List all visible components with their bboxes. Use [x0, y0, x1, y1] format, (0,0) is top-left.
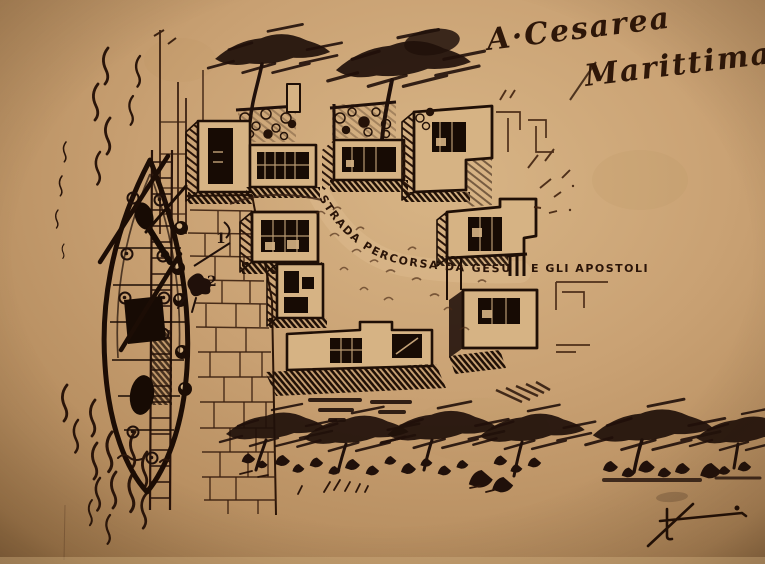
vignette	[0, 0, 765, 564]
caesarea-map-drawing: 1 2 STRADA PERCORSA DA GESÙ E GLI APOSTO…	[0, 0, 765, 564]
photo-bottom-edge	[0, 557, 765, 564]
photo-of-ink-drawing: 1 2 STRADA PERCORSA DA GESÙ E GLI APOSTO…	[0, 0, 765, 564]
